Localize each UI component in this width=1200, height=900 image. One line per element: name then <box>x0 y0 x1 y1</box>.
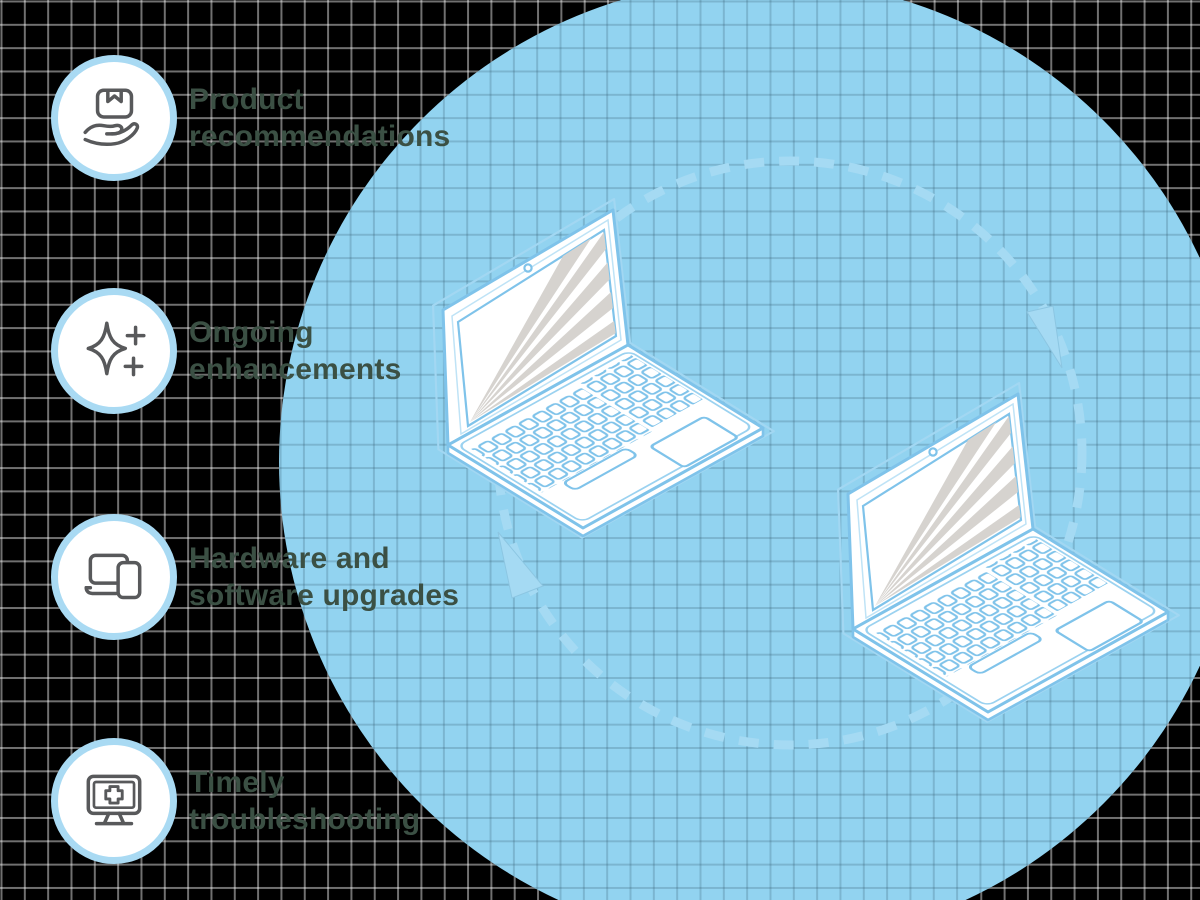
feature-icon-circle <box>51 288 177 414</box>
feature-icon-circle <box>51 55 177 181</box>
feature-label: Product recommendations <box>189 81 450 155</box>
feature-label-line: recommendations <box>189 118 450 155</box>
feature-list: Product recommendations Ongoing enhancem… <box>0 0 460 900</box>
cycle-arrow-left-icon <box>498 532 543 598</box>
feature-label: Hardware and software upgrades <box>189 540 459 614</box>
feature-label-line: Product <box>189 81 450 118</box>
feature-row-ongoing-enhancements: Ongoing enhancements <box>51 288 401 414</box>
feature-icon-circle <box>51 738 177 864</box>
feature-label-line: troubleshooting <box>189 801 420 838</box>
infographic-canvas: Product recommendations Ongoing enhancem… <box>0 0 1200 900</box>
cycle-arrow-right-icon <box>1027 306 1062 368</box>
feature-row-hardware-software-upgrades: Hardware and software upgrades <box>51 514 459 640</box>
monitor-cross-icon <box>77 764 151 838</box>
feature-label-line: enhancements <box>189 351 401 388</box>
box-in-hand-icon <box>77 81 151 155</box>
feature-row-product-recommendations: Product recommendations <box>51 55 450 181</box>
feature-label-line: Timely <box>189 764 420 801</box>
feature-label-line: software upgrades <box>189 577 459 614</box>
feature-label: Timely troubleshooting <box>189 764 420 838</box>
sparkle-plus-icon <box>77 314 151 388</box>
feature-label: Ongoing enhancements <box>189 314 401 388</box>
laptop-tablet-icon <box>77 540 151 614</box>
feature-icon-circle <box>51 514 177 640</box>
feature-label-line: Hardware and <box>189 540 459 577</box>
feature-label-line: Ongoing <box>189 314 401 351</box>
laptop-illustration-2 <box>838 383 1179 722</box>
feature-row-timely-troubleshooting: Timely troubleshooting <box>51 738 420 864</box>
laptop-illustration-1 <box>433 199 774 538</box>
